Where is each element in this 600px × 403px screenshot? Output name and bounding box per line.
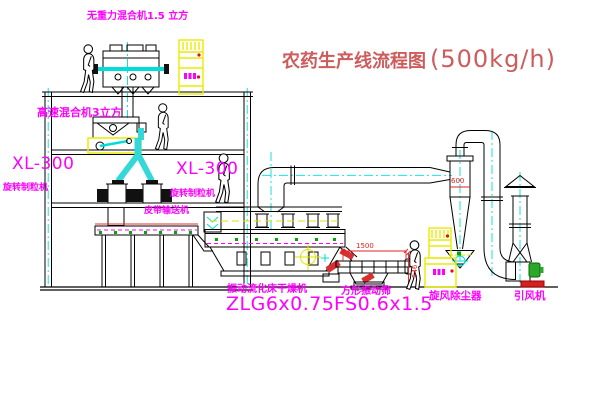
granulator-right <box>132 184 172 203</box>
label-granulator-left-name: 旋转制粒机 <box>3 184 48 193</box>
person-roof <box>81 45 94 93</box>
belt-conveyor <box>95 224 213 287</box>
exhaust-duct <box>258 166 450 213</box>
title-text: 农药生产线流程图 <box>282 47 426 73</box>
dimension-sieve-height: 546 <box>412 265 419 278</box>
drawing-title: 农药生产线流程图 (500kg/h) <box>282 45 556 73</box>
induced-draft-fan <box>504 176 544 288</box>
y-pipe-flange-left <box>112 180 124 184</box>
square-sieve <box>336 259 414 289</box>
cabinet-display <box>184 73 196 79</box>
label-sieve-model: FS0.6x1.5 <box>334 295 433 314</box>
label-granulator-mid-model: XL-300 <box>176 161 238 178</box>
title-capacity: (500kg/h) <box>430 45 556 73</box>
label-belt-conveyor: 皮带输送机 <box>144 207 189 216</box>
cyclone-outlet-duct <box>456 131 516 280</box>
label-weightless-mixer: 无重力混合机1.5 立方 <box>87 12 188 22</box>
dryer-center-mark <box>295 244 321 270</box>
control-cabinet-2 <box>425 228 456 287</box>
cabinet-display <box>433 269 445 275</box>
label-fan: 引风机 <box>514 291 546 302</box>
label-granulator-left-model: XL-300 <box>12 156 74 173</box>
control-cabinet-1 <box>179 40 203 94</box>
label-granulator-mid-name: 旋转制粒机 <box>170 190 215 199</box>
granulator-discharge-duct <box>108 208 124 226</box>
label-high-speed-mixer: 高速混合机3立方 <box>37 107 122 118</box>
flow-diagram: 农药生产线流程图 (500kg/h) 无重力混合机1.5 立方 高速混合机3立方… <box>0 0 600 403</box>
dimension-sieve-length: 1500 <box>356 243 374 250</box>
label-cyclone: 旋风除尘器 <box>429 291 482 302</box>
fluid-bed-dryer <box>205 207 357 282</box>
person-floor2 <box>155 104 168 150</box>
granulator-left <box>97 184 137 203</box>
dimension-cyclone: 600 <box>451 178 464 185</box>
label-dryer-model: ZLG6x0.75 <box>226 295 334 314</box>
y-pipe-flange-right <box>146 180 158 184</box>
